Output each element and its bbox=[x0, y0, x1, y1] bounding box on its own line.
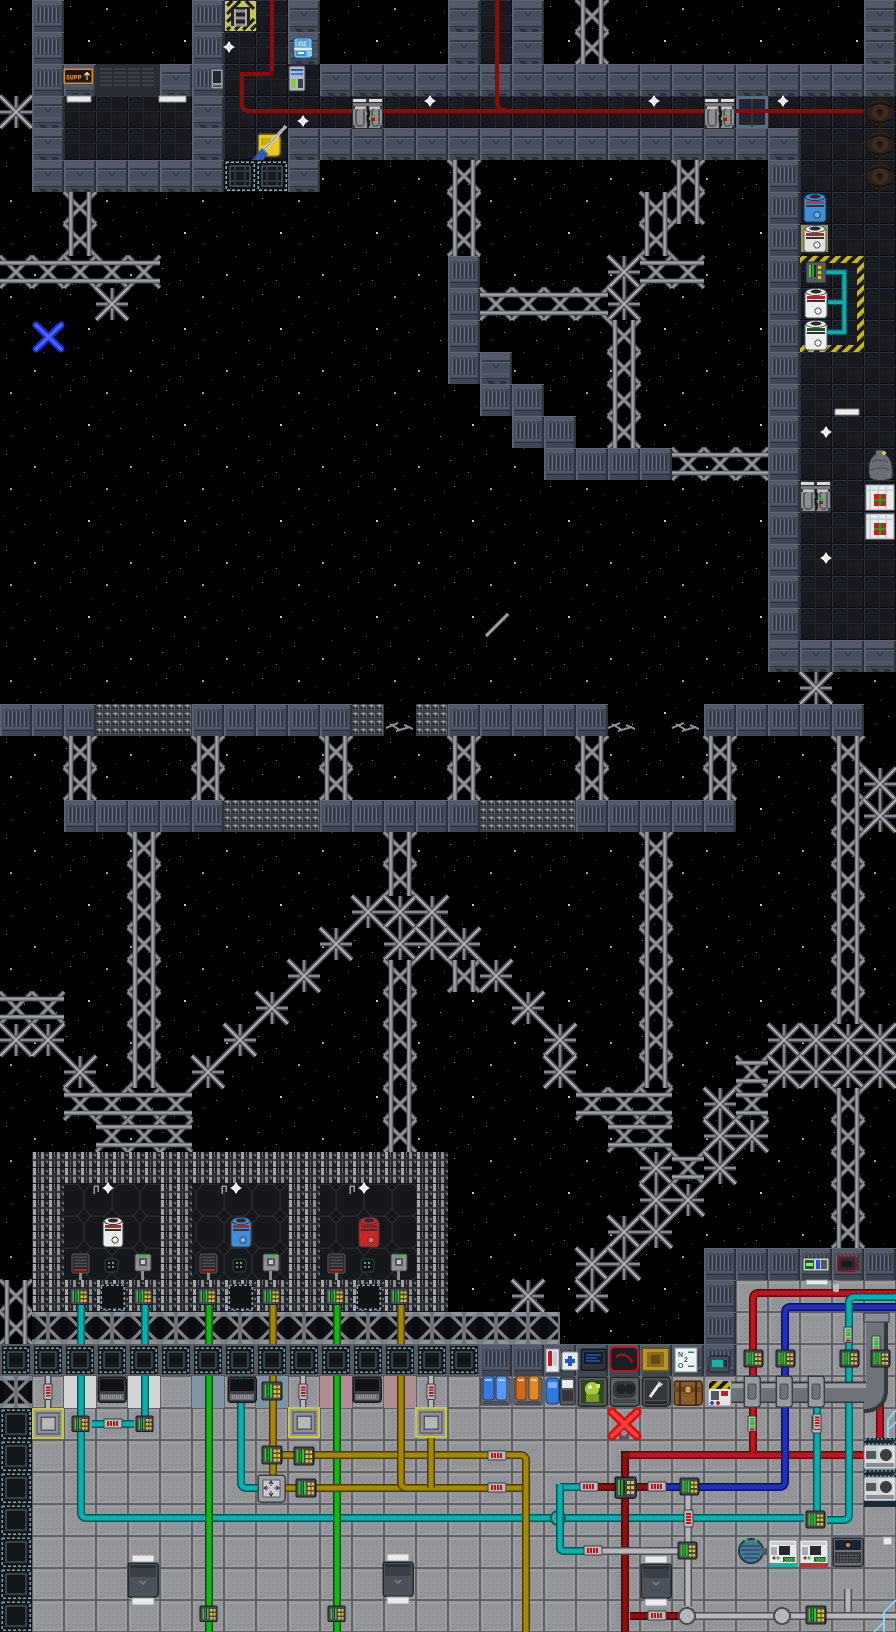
svg-text:N: N bbox=[678, 1352, 683, 1359]
svg-text:2: 2 bbox=[684, 1357, 688, 1364]
svg-text:SUPP: SUPP bbox=[66, 75, 82, 82]
svg-text:O: O bbox=[678, 1363, 684, 1370]
svg-text:O2: O2 bbox=[298, 41, 307, 48]
